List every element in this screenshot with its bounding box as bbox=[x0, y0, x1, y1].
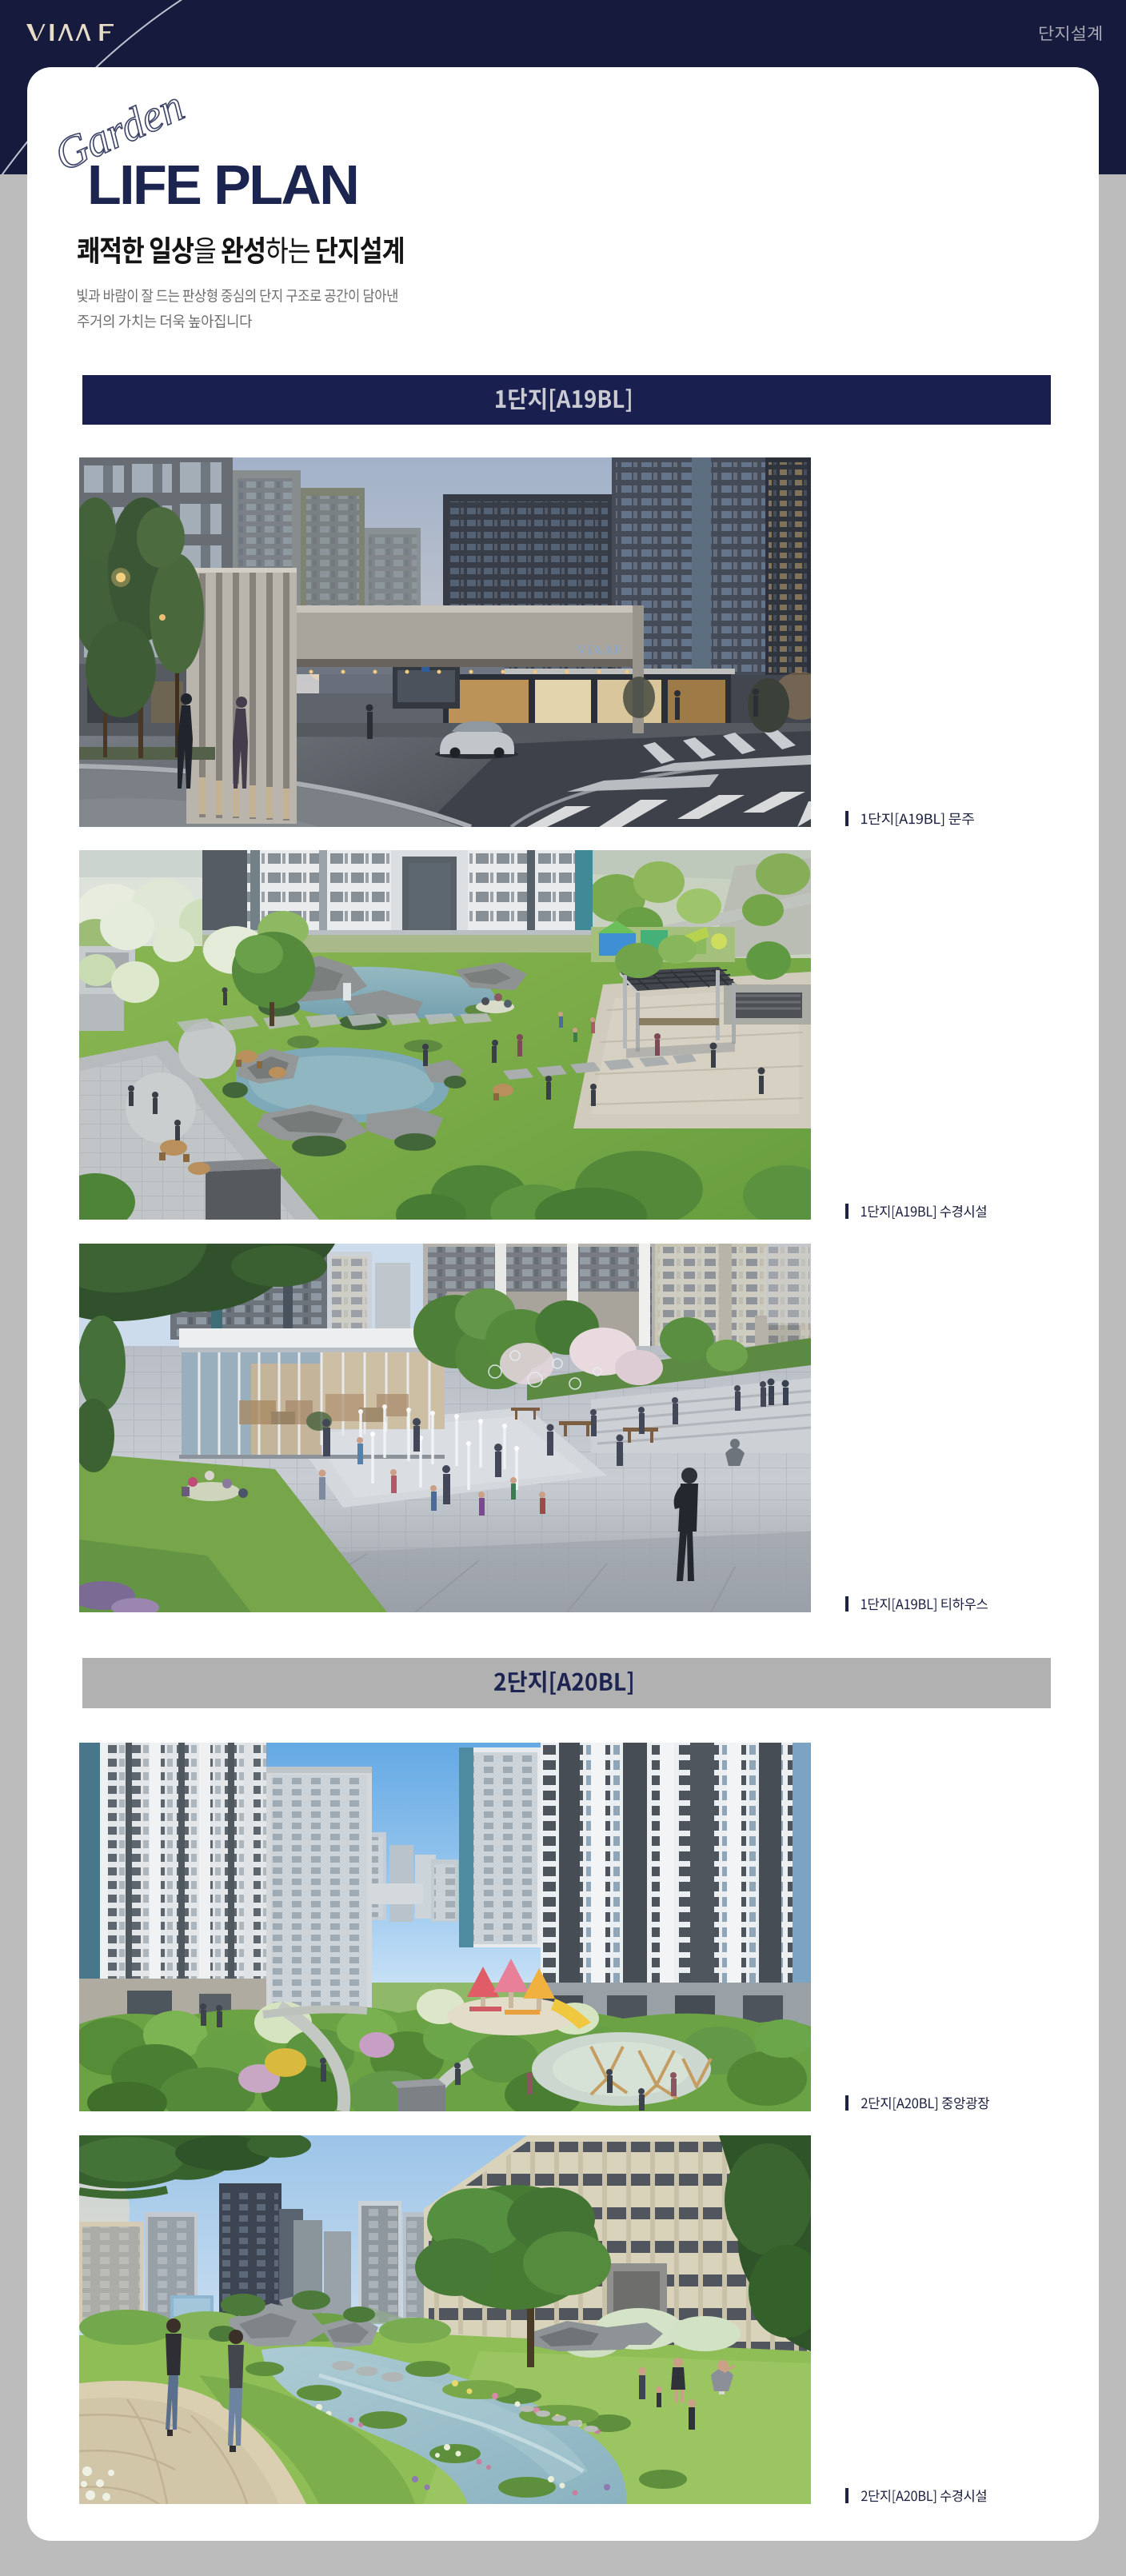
svg-text:VIAAF: VIAAF bbox=[577, 642, 622, 657]
